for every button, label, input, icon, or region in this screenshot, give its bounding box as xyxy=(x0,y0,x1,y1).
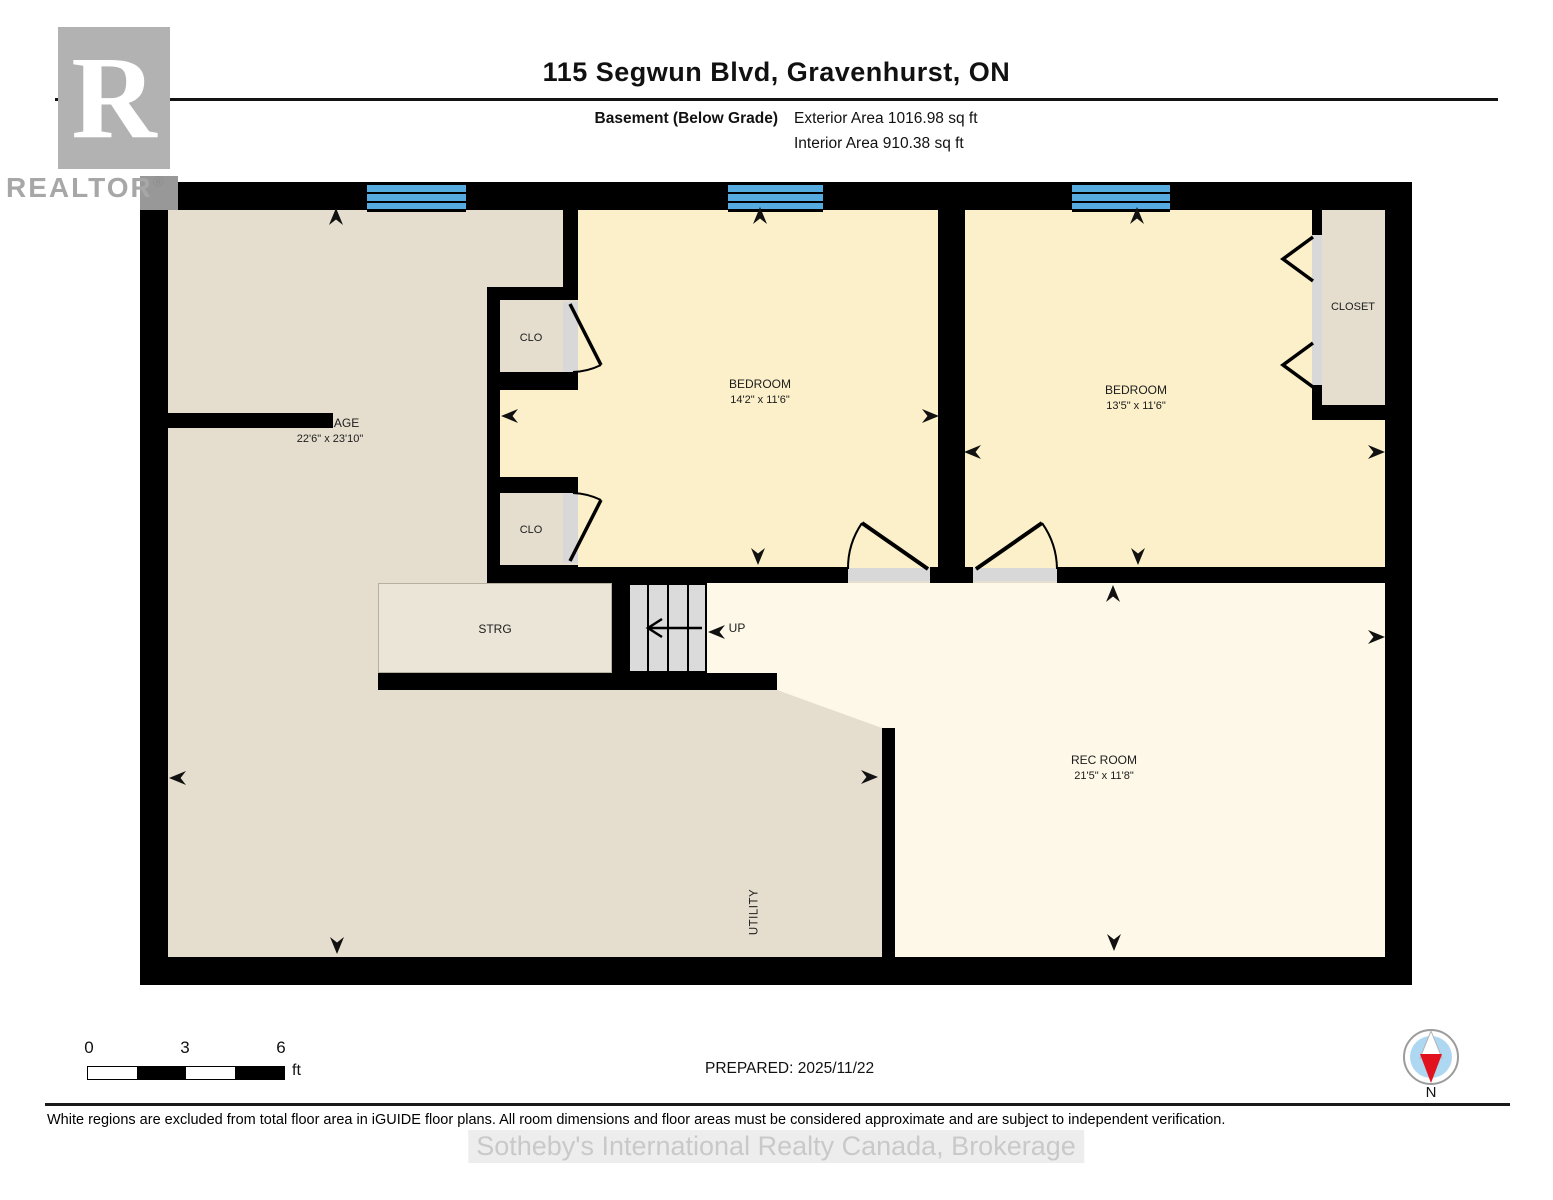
rec-room-label: REC ROOM 21'5" x 11'8" xyxy=(1071,753,1137,784)
wall xyxy=(1312,210,1322,235)
clo1-label: CLO xyxy=(520,331,543,346)
window xyxy=(367,182,466,212)
staircase xyxy=(628,583,707,673)
door-opening xyxy=(563,493,578,563)
door-opening xyxy=(563,302,578,372)
floor-plan-page: 115 Segwun Blvd, Gravenhurst, ON Basemen… xyxy=(0,0,1553,1200)
wall xyxy=(1312,385,1322,405)
wall xyxy=(938,205,965,570)
wall xyxy=(500,477,578,493)
page-title: 115 Segwun Blvd, Gravenhurst, ON xyxy=(0,57,1553,88)
door-opening xyxy=(1312,235,1322,385)
door-opening xyxy=(973,568,1057,581)
bedroom1-niche-floor xyxy=(500,390,578,477)
wall xyxy=(487,300,500,583)
wall xyxy=(378,673,777,690)
wall xyxy=(563,210,578,290)
storage-dims: 22'6" x 23'10" xyxy=(297,433,363,445)
wall xyxy=(882,728,895,957)
wall xyxy=(140,957,1412,985)
registered-mark: ® xyxy=(153,174,166,191)
footer-divider xyxy=(45,1103,1510,1106)
wall xyxy=(1057,567,1385,583)
wall xyxy=(930,567,973,583)
scale-bar xyxy=(87,1066,285,1080)
bedroom1-label: BEDROOM 14'2" x 11'6" xyxy=(729,377,791,408)
disclaimer-text: White regions are excluded from total fl… xyxy=(47,1112,1225,1128)
bedroom2-label: BEDROOM 13'5" x 11'6" xyxy=(1105,383,1167,414)
realtor-wordmark: REALTOR® xyxy=(6,172,166,204)
wall xyxy=(1312,405,1412,420)
window xyxy=(728,182,823,212)
floor-label: Basement (Below Grade) xyxy=(430,110,778,128)
utility-label: UTILITY xyxy=(748,889,763,935)
realtor-logo-icon: R xyxy=(58,27,170,169)
wall xyxy=(140,182,168,985)
scale-tick-3: 3 xyxy=(180,1038,189,1058)
scale-unit: ft xyxy=(292,1062,301,1080)
door-opening xyxy=(848,568,930,581)
wall xyxy=(500,372,578,390)
title-divider xyxy=(55,98,1498,101)
closet-label: CLOSET xyxy=(1331,300,1375,315)
prepared-date: PREPARED: 2025/11/22 xyxy=(705,1060,874,1078)
wall xyxy=(1385,182,1412,985)
bedroom1-dims: 14'2" x 11'6" xyxy=(730,394,790,406)
wall xyxy=(487,287,578,300)
compass-icon xyxy=(1404,1030,1458,1084)
interior-area: Interior Area 910.38 sq ft xyxy=(794,135,964,153)
realtor-logo-letter: R xyxy=(71,39,156,157)
wall xyxy=(487,567,848,583)
strg-label: STRG xyxy=(478,622,511,637)
scale-tick-6: 6 xyxy=(276,1038,285,1058)
exterior-area: Exterior Area 1016.98 sq ft xyxy=(794,110,978,128)
scale-tick-0: 0 xyxy=(84,1038,93,1058)
stairs-up-label: UP xyxy=(729,621,746,636)
bedrooms-floor xyxy=(578,210,1385,570)
brokerage-watermark: Sotheby's International Realty Canada, B… xyxy=(468,1130,1084,1163)
bedroom2-dims: 13'5" x 11'6" xyxy=(1106,400,1166,412)
clo2-label: CLO xyxy=(520,523,543,538)
rec-room-dims: 21'5" x 11'8" xyxy=(1074,770,1134,782)
wall xyxy=(168,413,333,428)
window xyxy=(1072,182,1170,212)
compass-north-label: N xyxy=(1426,1084,1437,1101)
wall xyxy=(612,583,628,673)
